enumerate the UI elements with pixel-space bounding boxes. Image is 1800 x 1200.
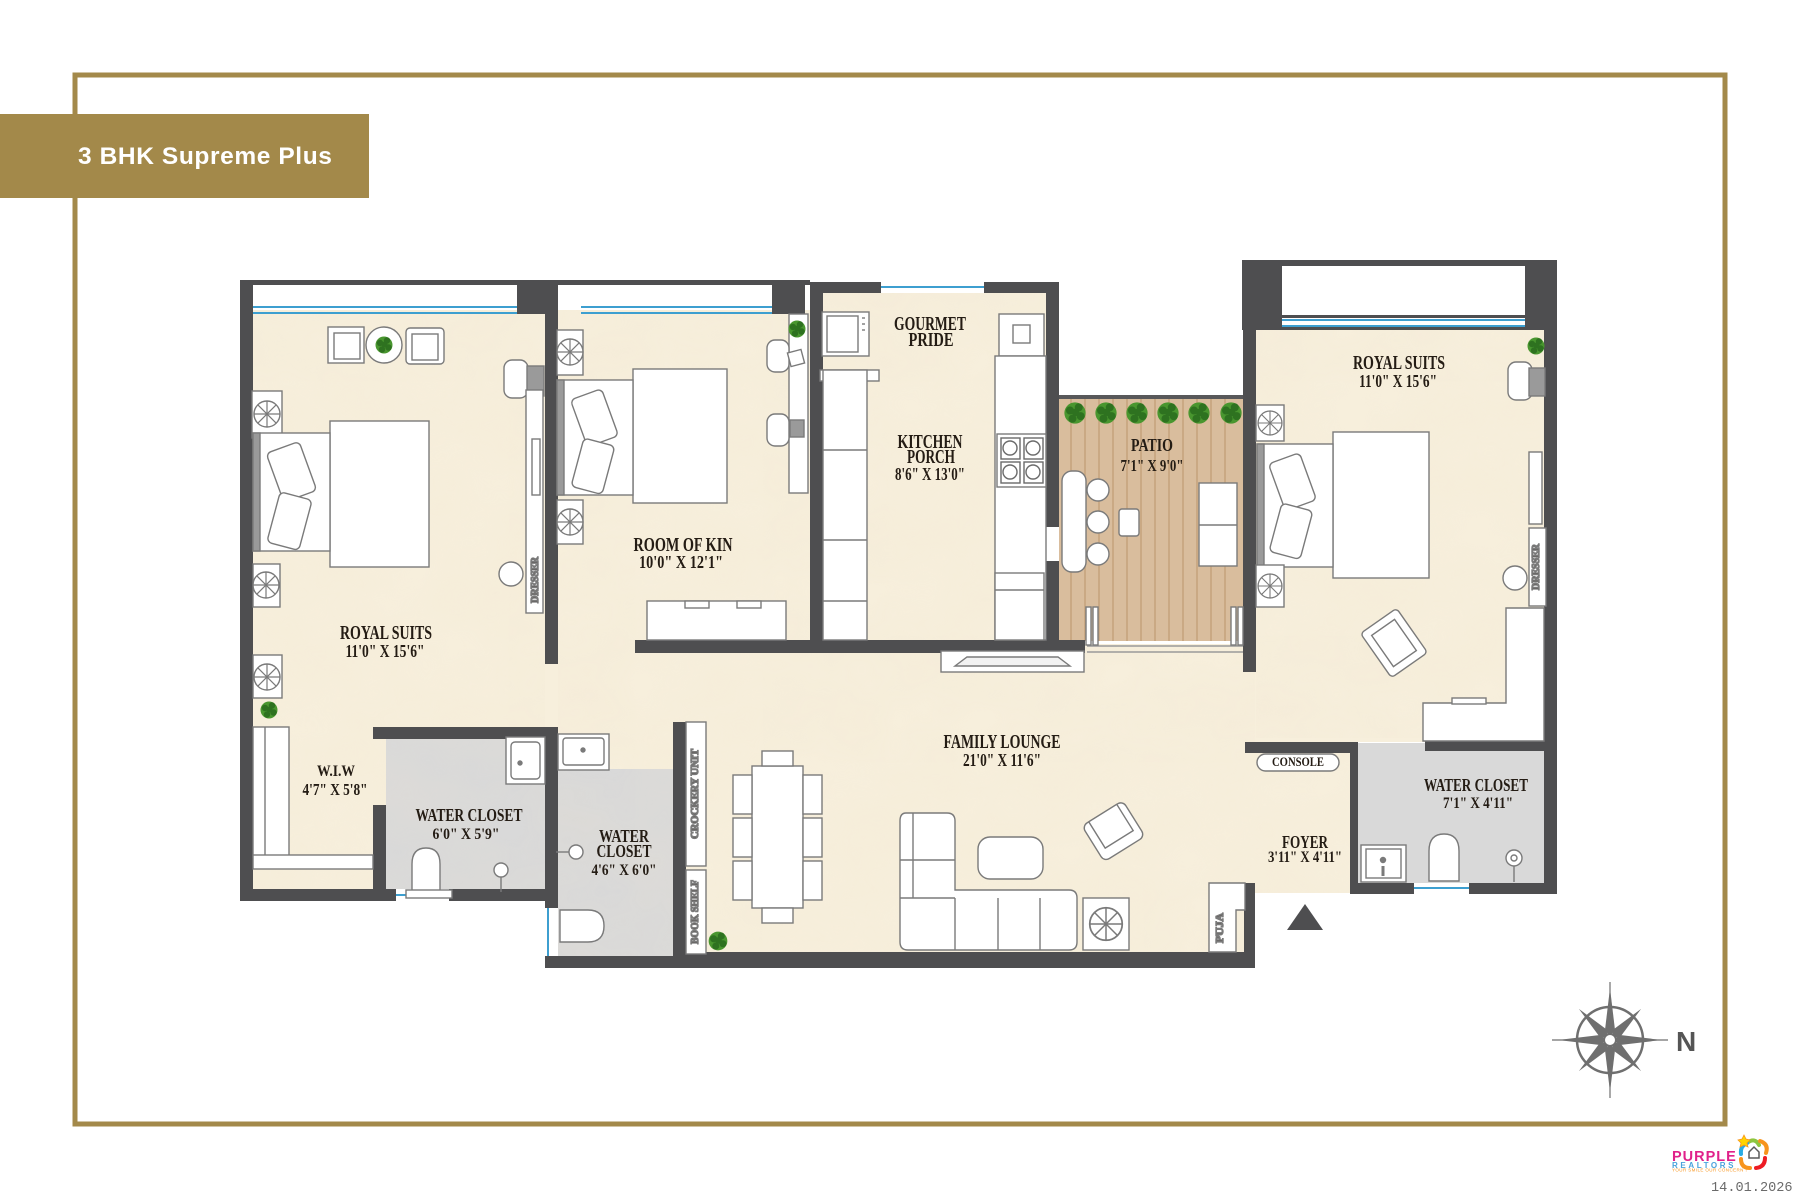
svg-text:DRESSER: DRESSER: [530, 557, 541, 603]
svg-text:CONSOLE: CONSOLE: [1272, 754, 1324, 769]
svg-text:11'0" X 15'6": 11'0" X 15'6": [1359, 371, 1437, 391]
svg-text:21'0" X 11'6": 21'0" X 11'6": [963, 750, 1041, 770]
svg-text:8'6" X 13'0": 8'6" X 13'0": [895, 464, 965, 484]
svg-text:WATER CLOSET: WATER CLOSET: [1424, 775, 1528, 795]
svg-text:6'0" X 5'9": 6'0" X 5'9": [433, 826, 500, 843]
svg-text:4'6" X 6'0": 4'6" X 6'0": [592, 862, 657, 879]
svg-text:7'1" X 4'11": 7'1" X 4'11": [1443, 795, 1513, 812]
svg-text:YOUR SMILE OUR CONCERN !: YOUR SMILE OUR CONCERN !: [1672, 1168, 1747, 1173]
svg-text:N: N: [1676, 1026, 1696, 1057]
svg-text:PUJA: PUJA: [1215, 913, 1226, 943]
svg-text:DRESSER: DRESSER: [1531, 544, 1542, 590]
svg-text:4'7" X 5'8": 4'7" X 5'8": [303, 780, 368, 799]
svg-text:7'1" X 9'0": 7'1" X 9'0": [1121, 456, 1184, 475]
svg-text:WATER CLOSET: WATER CLOSET: [416, 805, 523, 825]
svg-text:3'11" X 4'11": 3'11" X 4'11": [1268, 849, 1342, 866]
svg-text:PATIO: PATIO: [1131, 435, 1173, 455]
svg-text:CROCKERY UNIT: CROCKERY UNIT: [690, 749, 701, 839]
svg-text:W.I.W: W.I.W: [317, 763, 355, 780]
svg-text:BOOK SHELF: BOOK SHELF: [690, 880, 701, 944]
svg-text:CLOSET: CLOSET: [597, 841, 652, 861]
svg-text:PRIDE: PRIDE: [909, 329, 954, 351]
svg-text:10'0" X 12'1": 10'0" X 12'1": [639, 552, 723, 572]
svg-text:14.01.2026: 14.01.2026: [1711, 1181, 1793, 1196]
svg-text:3 BHK Supreme Plus: 3 BHK Supreme Plus: [78, 143, 333, 170]
svg-text:11'0" X 15'6": 11'0" X 15'6": [346, 641, 425, 661]
